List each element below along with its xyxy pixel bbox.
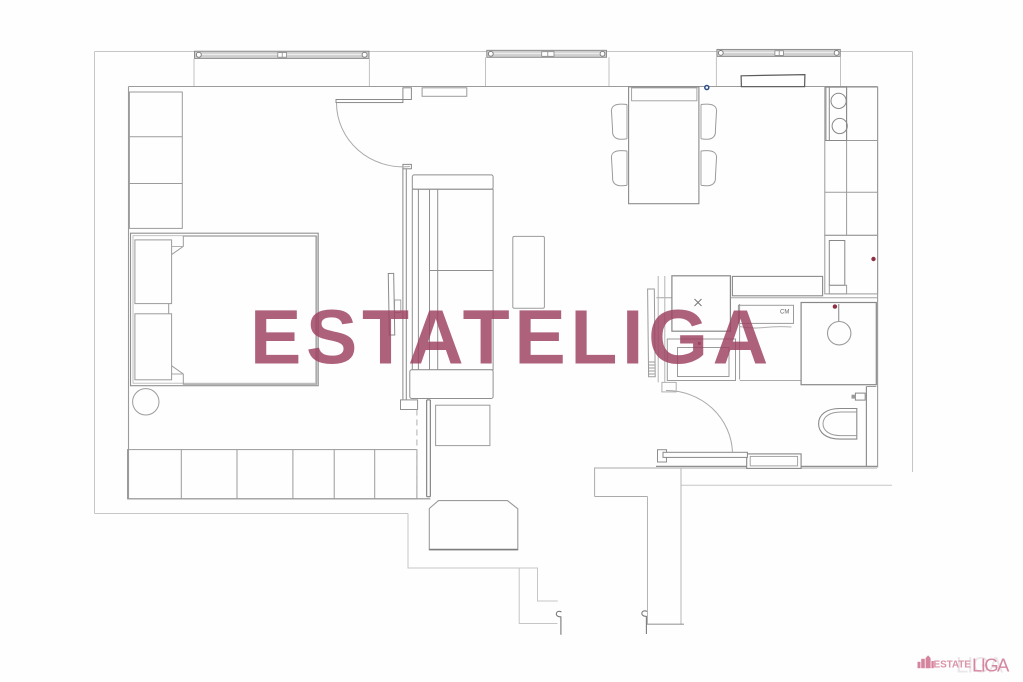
svg-text:ESTATE: ESTATE <box>934 660 972 671</box>
svg-text:ESTATELIGA: ESTATELIGA <box>250 295 773 381</box>
svg-text:LIGA: LIGA <box>972 655 1010 676</box>
svg-text:CM: CM <box>780 310 789 316</box>
